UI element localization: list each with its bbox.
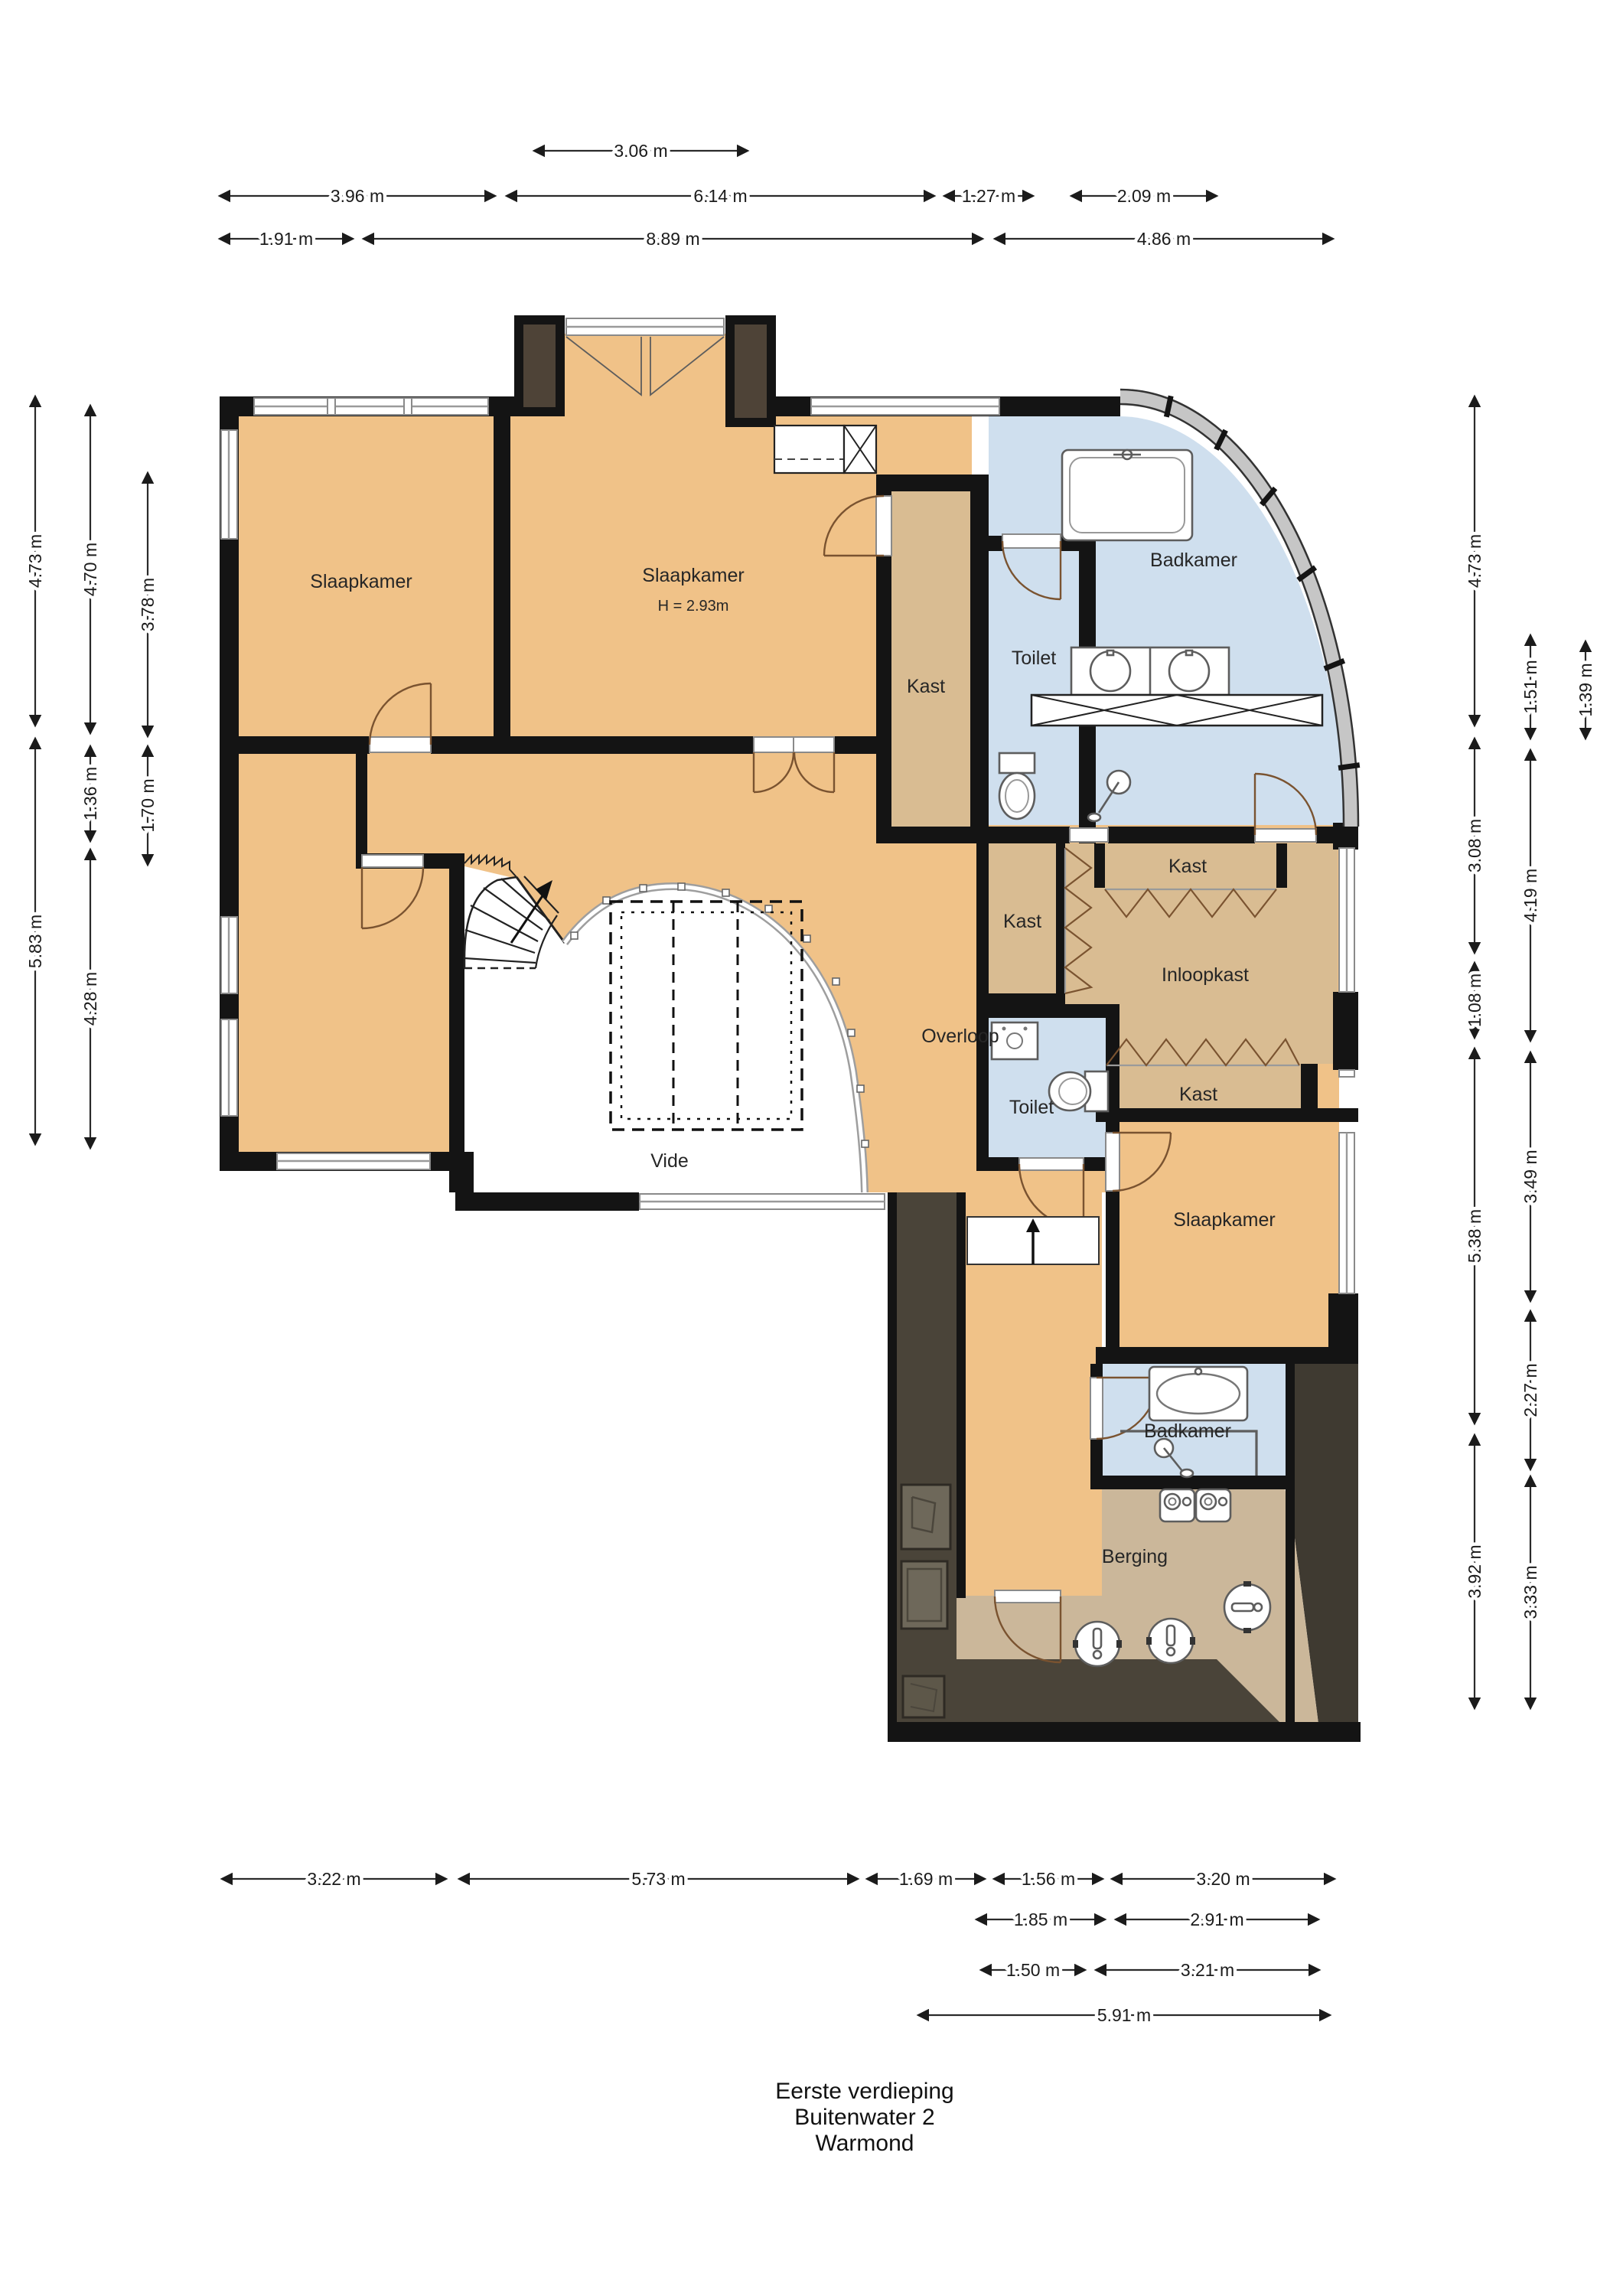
boiler-icon xyxy=(1073,1622,1122,1666)
dimension-label: 3.21 m xyxy=(1181,1960,1234,1980)
hatched-wall xyxy=(1031,695,1322,726)
dimension-label: 2.09 m xyxy=(1117,186,1171,206)
room-label-toilet-mid: Toilet xyxy=(1009,1097,1054,1118)
dimension-label: 5.83 m xyxy=(25,915,45,968)
room-label-kast-mid: Kast xyxy=(1168,856,1207,877)
room-label-slaapkamer-tl: Slaapkamer xyxy=(310,571,412,592)
plan-title: Eerste verdiepingBuitenwater 2Warmond xyxy=(775,2079,953,2156)
installation-unit xyxy=(901,1485,950,1717)
dimension-label: 4.19 m xyxy=(1520,869,1540,922)
title-line-1: Eerste verdieping xyxy=(775,2079,953,2104)
dimension-label: 4.70 m xyxy=(80,543,100,596)
room-sublabel-slaapkamer-tm: H = 2.93m xyxy=(658,598,729,615)
room-label-badkamer-top: Badkamer xyxy=(1150,550,1237,571)
room-label-berging: Berging xyxy=(1102,1546,1168,1567)
dimension-label: 3.33 m xyxy=(1520,1565,1540,1619)
dimension-label: 1.85 m xyxy=(1014,1910,1067,1929)
room-label-kast-narrow: Kast xyxy=(1003,911,1041,932)
dimension-label: 2.91 m xyxy=(1190,1910,1243,1929)
floor-kast-top xyxy=(891,491,970,827)
dimension-label: 5.91 m xyxy=(1097,2005,1151,2025)
dimension-label: 4.86 m xyxy=(1137,229,1191,249)
dimension-label: 4.73 m xyxy=(1465,534,1484,588)
dimension-label: 3.96 m xyxy=(331,186,384,206)
dimension-label: 4.73 m xyxy=(25,534,45,588)
dimension-label: 6.14 m xyxy=(693,186,747,206)
title-line-3: Warmond xyxy=(816,2131,914,2156)
dimension-label: 1.56 m xyxy=(1022,1869,1075,1889)
dimension-label: 5.38 m xyxy=(1465,1209,1484,1263)
bathtub-icon xyxy=(1149,1367,1247,1420)
dimension-label: 5.73 m xyxy=(631,1869,685,1889)
dimension-label: 4.28 m xyxy=(80,972,100,1026)
washer-icon xyxy=(1160,1489,1194,1521)
toilet-icon xyxy=(1049,1071,1108,1111)
dimension-label: 8.89 m xyxy=(646,229,699,249)
floor-fills xyxy=(239,334,1358,1742)
washbasin-icon xyxy=(1071,647,1229,695)
bathtub-icon xyxy=(1062,450,1192,540)
room-label-overloop: Overloop xyxy=(921,1026,999,1047)
floor-slaapkamer-rechts xyxy=(1108,1122,1339,1349)
shaft-and-niche xyxy=(774,426,876,473)
room-label-badkamer-onder: Badkamer xyxy=(1144,1420,1231,1442)
dimension-label: 1.69 m xyxy=(899,1869,953,1889)
dimension-label: 1.51 m xyxy=(1520,660,1540,713)
title-line-2: Buitenwater 2 xyxy=(794,2105,934,2130)
dimension-label: 3.06 m xyxy=(614,141,667,161)
room-label-inloopkast: Inloopkast xyxy=(1162,964,1249,986)
boiler-icon xyxy=(1146,1619,1195,1663)
dimension-label: 3.20 m xyxy=(1196,1869,1250,1889)
dimension-label: 3.92 m xyxy=(1465,1544,1484,1598)
dimension-label: 3.08 m xyxy=(1465,819,1484,872)
dryer-icon xyxy=(1196,1489,1230,1521)
dimension-label: 1.50 m xyxy=(1006,1960,1060,1980)
dimension-label: 1.70 m xyxy=(138,778,158,832)
dimension-label: 3.22 m xyxy=(307,1869,360,1889)
room-label-slaapkamer-rechts: Slaapkamer xyxy=(1173,1209,1275,1231)
room-label-slaapkamer-tm: Slaapkamer xyxy=(642,565,744,586)
roof-zone-west xyxy=(888,1192,957,1742)
dimension-label: 1.91 m xyxy=(259,229,313,249)
floorplan-page: 3.06 m3.96 m6.14 m1.27 m2.09 m1.91 m8.89… xyxy=(0,0,1623,2296)
floorplan-canvas: 3.06 m3.96 m6.14 m1.27 m2.09 m1.91 m8.89… xyxy=(0,0,1623,2296)
dimension-label: 1.08 m xyxy=(1465,974,1484,1027)
toilet-icon xyxy=(999,753,1035,819)
room-label-vide: Vide xyxy=(650,1150,689,1172)
dimension-label: 3.78 m xyxy=(138,578,158,631)
dimension-label: 2.27 m xyxy=(1520,1363,1540,1417)
dimension-label: 1.39 m xyxy=(1576,663,1595,716)
dimension-label: 1.27 m xyxy=(962,186,1015,206)
corridor-step xyxy=(967,1217,1099,1264)
room-label-kast-top: Kast xyxy=(907,676,945,697)
dimension-label: 3.49 m xyxy=(1520,1150,1540,1203)
dimension-label: 1.36 m xyxy=(80,767,100,820)
room-label-kast-bottom: Kast xyxy=(1179,1084,1217,1105)
room-label-toilet-top: Toilet xyxy=(1012,647,1056,669)
floor-dormer xyxy=(565,334,725,418)
